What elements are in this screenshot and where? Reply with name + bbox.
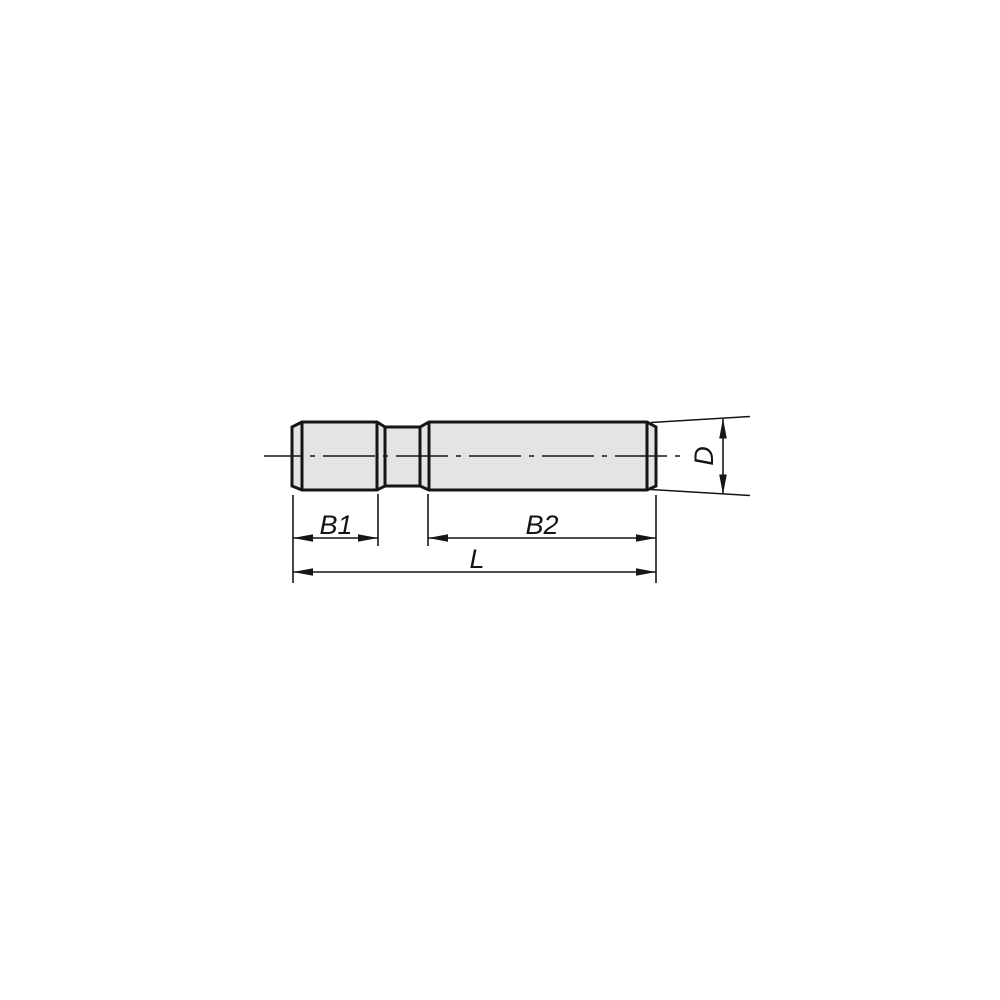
dimension-label-diameter: D	[689, 446, 719, 466]
dimension-label-length: L	[469, 544, 484, 574]
arrowhead-left	[293, 534, 313, 542]
arrowhead-up	[719, 419, 727, 439]
arrowhead-right	[636, 568, 656, 576]
arrowhead-right	[358, 534, 378, 542]
dimension-label-b2: B2	[525, 510, 558, 540]
arrowhead-down	[719, 475, 727, 495]
arrowhead-right	[636, 534, 656, 542]
arrowhead-left	[428, 534, 448, 542]
oblique-extension-line-top	[651, 417, 750, 423]
stud-technical-drawing: B1 B2 L D	[0, 0, 1000, 1000]
arrowhead-left	[293, 568, 313, 576]
dimension-label-b1: B1	[319, 510, 352, 540]
drawing-canvas: B1 B2 L D	[0, 0, 1000, 1000]
oblique-extension-line-bottom	[651, 490, 750, 496]
